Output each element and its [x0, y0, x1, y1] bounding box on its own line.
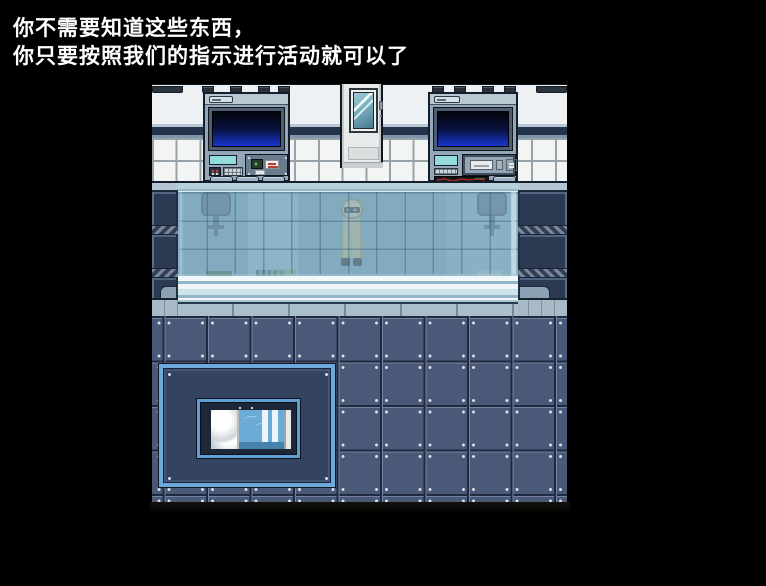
dialogue-line-1: 你不需要知道这些东西，: [13, 12, 255, 42]
door-handle: [379, 101, 383, 110]
bed-mattress: [211, 410, 291, 449]
instrument-panel: [462, 154, 516, 176]
pillar-step: [160, 286, 176, 298]
door-kick-panel: [348, 147, 379, 160]
keyboard: [434, 168, 458, 175]
left-control-console: [203, 92, 290, 182]
glass-highlight-right: [511, 192, 516, 276]
bed-frame-dot: [251, 407, 253, 409]
ceiling-cap-left: [152, 86, 183, 93]
pillar-panels: [152, 192, 178, 298]
pillar-base: [518, 298, 567, 316]
glass-base-stripes: [178, 274, 518, 302]
pillar-panel: [154, 192, 176, 225]
keypad-buttons: [209, 167, 221, 176]
hazard-stripe-band: [152, 225, 178, 235]
mat-corner-dot: [325, 373, 328, 376]
ceiling-cap-right: [536, 86, 567, 93]
console-label-plate: [209, 96, 233, 103]
pillar-panel: [520, 235, 565, 268]
pillar-step: [520, 286, 550, 298]
hazard-stripe-band: [518, 225, 567, 235]
mat-corner-dot: [168, 477, 171, 480]
observation-glass-tank: [178, 181, 518, 316]
slot-device: [470, 160, 493, 170]
game-viewport[interactable]: 你不需要知道这些东西， 你只要按照我们的指示进行活动就可以了: [0, 0, 766, 586]
vent-module: [506, 159, 517, 171]
scene-floor-shadow: [150, 502, 570, 514]
dialogue-line-2: 你只要按照我们的指示进行活动就可以了: [13, 40, 409, 70]
hazard-stripe-band: [152, 268, 178, 278]
panel-inset: [465, 157, 513, 173]
blue-monitor-screen: [437, 111, 509, 147]
bed-frame-dot: [239, 407, 241, 409]
wall-pillar-right: [518, 181, 567, 316]
laboratory-scene: [152, 84, 567, 502]
door-threshold: [344, 162, 383, 168]
bed-frame: [200, 402, 297, 455]
door-keyhole: [380, 115, 382, 117]
pillar-panels: [518, 192, 567, 298]
instrument-panel: [245, 154, 288, 176]
small-module: [255, 170, 265, 175]
label-card: [265, 160, 279, 169]
door-window: [349, 88, 378, 133]
wall-pillar-left: [152, 181, 178, 316]
bed-footboard: [284, 410, 291, 449]
door-glass: [353, 92, 374, 129]
monitor-bezel: [208, 107, 285, 151]
pillar-panel: [154, 235, 176, 268]
pillar-cap: [518, 181, 567, 192]
glass-highlight-left: [178, 192, 182, 276]
mat-corner-dot: [168, 373, 171, 376]
hazard-stripe-band: [518, 268, 567, 278]
pillar-base: [152, 298, 178, 316]
right-control-console: [428, 92, 518, 182]
mat-corner-dot: [325, 477, 328, 480]
bed: [196, 398, 301, 459]
cyan-readout-screen: [209, 155, 237, 165]
cyan-terminal-screen: [434, 155, 458, 166]
keyboard: [223, 167, 243, 176]
small-switch: [496, 160, 503, 170]
monitor-bezel: [433, 107, 513, 151]
pillar-cap: [152, 181, 178, 192]
tank-baseboard: [178, 302, 518, 316]
tank-top-rail: [178, 183, 518, 192]
blue-monitor-screen: [212, 111, 281, 147]
console-label-plate: [434, 96, 460, 103]
pillar-panel: [520, 192, 565, 225]
console-top-bar: [205, 94, 288, 105]
white-pillow: [211, 410, 239, 449]
glass-grid-overlay: [178, 192, 518, 274]
lab-door: [340, 84, 383, 168]
console-top-bar: [430, 94, 516, 105]
green-indicator-screen: [251, 159, 263, 169]
blanket-crease: [244, 415, 258, 423]
